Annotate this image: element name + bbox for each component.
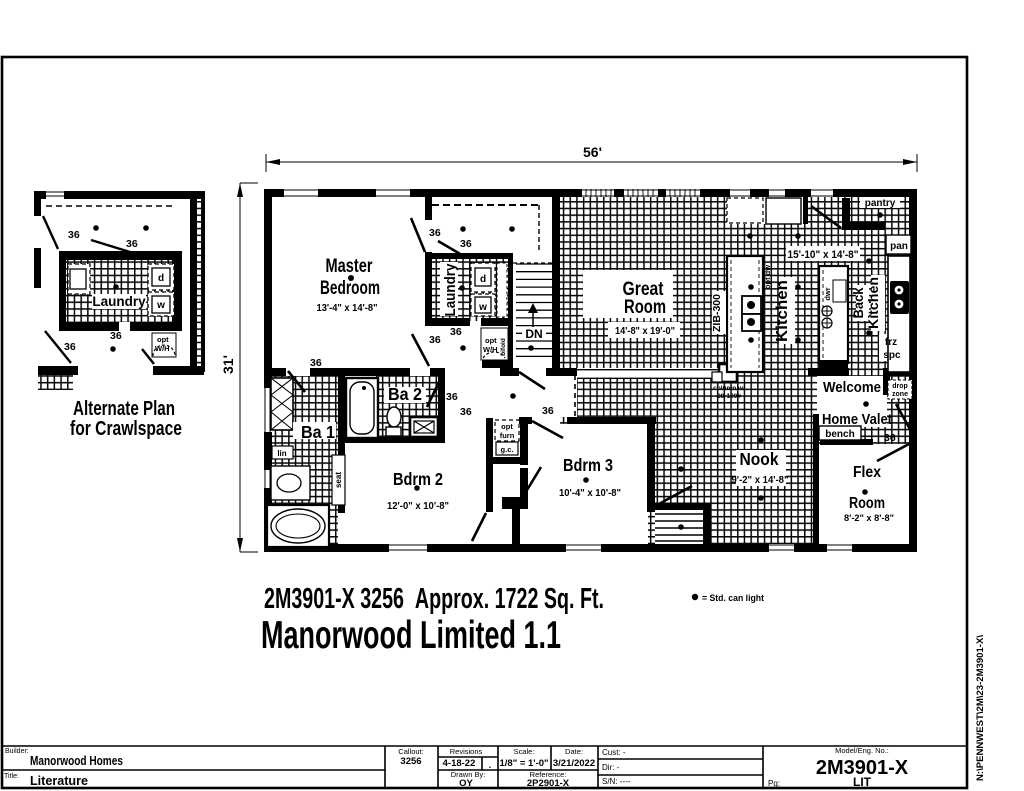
svg-text:36: 36 bbox=[446, 391, 458, 403]
svg-text:36: 36 bbox=[460, 406, 472, 418]
svg-text:.: . bbox=[489, 760, 492, 771]
svg-text:S/N: ----: S/N: ---- bbox=[602, 777, 631, 786]
svg-text:1/8" = 1'-0": 1/8" = 1'-0" bbox=[499, 758, 548, 769]
svg-text:Title:: Title: bbox=[4, 773, 19, 780]
svg-text:14'-8" x 19'-0": 14'-8" x 19'-0" bbox=[615, 325, 675, 337]
svg-text:Dir: -: Dir: - bbox=[602, 763, 620, 772]
svg-text:zone: zone bbox=[892, 391, 908, 398]
svg-text:36: 36 bbox=[429, 227, 441, 239]
svg-text:15'-10" x 14'-8": 15'-10" x 14'-8" bbox=[788, 249, 859, 261]
svg-text:= Std. can light: = Std. can light bbox=[702, 593, 765, 604]
svg-text:3256: 3256 bbox=[400, 756, 421, 767]
svg-text:36: 36 bbox=[429, 334, 441, 346]
svg-text:Alternate Plan: Alternate Plan bbox=[73, 398, 175, 420]
svg-text:W/H: W/H bbox=[483, 345, 498, 354]
svg-text:Bedroom: Bedroom bbox=[320, 278, 380, 299]
svg-text:frz: frz bbox=[885, 337, 897, 348]
svg-text:Manorwood Limited 1.1: Manorwood Limited 1.1 bbox=[261, 614, 561, 657]
svg-text:36: 36 bbox=[126, 238, 138, 250]
svg-text:8'-2" x 8'-8": 8'-2" x 8'-8" bbox=[844, 513, 894, 523]
svg-text:Date:: Date: bbox=[565, 747, 583, 756]
svg-text:3/21/2022: 3/21/2022 bbox=[553, 758, 595, 769]
svg-text:dwr: dwr bbox=[823, 287, 832, 300]
svg-text:36: 36 bbox=[884, 432, 896, 444]
svg-text:d: d bbox=[158, 273, 164, 284]
svg-text:furn: furn bbox=[500, 431, 515, 440]
svg-text:N:\PENNWEST\2M\23-2M3901-X\: N:\PENNWEST\2M\23-2M3901-X\ bbox=[975, 634, 985, 781]
svg-text:Model/Eng. No.:: Model/Eng. No.: bbox=[835, 746, 889, 755]
svg-text:Welcome: Welcome bbox=[823, 380, 881, 396]
svg-text:LIT: LIT bbox=[853, 775, 872, 789]
svg-text:56': 56' bbox=[583, 144, 602, 160]
svg-text:spc: spc bbox=[883, 350, 901, 361]
svg-text:bifold: bifold bbox=[500, 338, 507, 356]
svg-text:lin: lin bbox=[277, 449, 286, 458]
svg-text:12'-0" x 10'-8": 12'-0" x 10'-8" bbox=[387, 501, 449, 512]
svg-text:9'-2" x 14'-8": 9'-2" x 14'-8" bbox=[732, 475, 789, 486]
svg-text:d: d bbox=[480, 274, 486, 285]
svg-text:80-100#: 80-100# bbox=[717, 393, 741, 400]
svg-text:column w/: column w/ bbox=[713, 385, 745, 392]
svg-text:Pg:: Pg: bbox=[768, 779, 780, 788]
svg-text:DN: DN bbox=[525, 327, 542, 341]
svg-text:opt: opt bbox=[485, 336, 497, 345]
svg-text:opt: opt bbox=[501, 422, 513, 431]
svg-text:4-18-22: 4-18-22 bbox=[443, 758, 476, 769]
svg-text:Flex: Flex bbox=[853, 464, 881, 481]
svg-text:Kitchen: Kitchen bbox=[866, 277, 881, 329]
svg-text:36: 36 bbox=[68, 229, 80, 241]
svg-text:Scale:: Scale: bbox=[514, 747, 535, 756]
svg-text:Kitchen: Kitchen bbox=[774, 280, 791, 342]
svg-text:31': 31' bbox=[220, 355, 236, 374]
svg-text:Nook: Nook bbox=[740, 449, 779, 469]
svg-text:Revisions: Revisions bbox=[450, 747, 483, 756]
svg-text:w: w bbox=[478, 302, 487, 313]
svg-text:2P2901-X: 2P2901-X bbox=[527, 778, 570, 789]
svg-text:Back: Back bbox=[851, 287, 866, 318]
svg-text:for Crawlspace: for Crawlspace bbox=[70, 418, 182, 440]
svg-text:W/H: W/H bbox=[155, 344, 170, 353]
svg-text:drop: drop bbox=[892, 383, 908, 390]
svg-text:Ba 1: Ba 1 bbox=[301, 422, 335, 442]
svg-text:Master: Master bbox=[326, 256, 373, 277]
svg-text:seat: seat bbox=[334, 472, 343, 488]
svg-text:36: 36 bbox=[310, 357, 322, 369]
svg-text:Ba 2: Ba 2 bbox=[388, 384, 422, 404]
svg-text:36: 36 bbox=[110, 330, 122, 342]
svg-text:Room: Room bbox=[624, 297, 666, 318]
svg-text:Manorwood Homes: Manorwood Homes bbox=[30, 754, 123, 768]
svg-text:Literature: Literature bbox=[30, 774, 88, 788]
svg-text:36: 36 bbox=[64, 341, 76, 353]
svg-text:Laundry: Laundry bbox=[92, 294, 146, 309]
svg-text:36: 36 bbox=[460, 238, 472, 250]
svg-text:opt: opt bbox=[157, 335, 169, 344]
svg-text:2M3901-X 3256 Approx. 1722 Sq: 2M3901-X 3256 Approx. 1722 Sq. Ft. bbox=[264, 583, 604, 615]
svg-text:Callout:: Callout: bbox=[398, 747, 423, 756]
svg-text:Home Valet: Home Valet bbox=[822, 412, 892, 428]
svg-text:Builder:: Builder: bbox=[5, 748, 29, 755]
svg-text:ZIB-300: ZIB-300 bbox=[712, 294, 723, 332]
svg-text:w: w bbox=[156, 300, 165, 311]
svg-text:36: 36 bbox=[542, 405, 554, 417]
svg-text:13'-4" x 14'-8": 13'-4" x 14'-8" bbox=[317, 302, 378, 314]
svg-text:pantry: pantry bbox=[865, 198, 896, 209]
svg-text:Room: Room bbox=[849, 495, 885, 512]
svg-text:Laundry: Laundry bbox=[442, 263, 459, 317]
svg-text:g.c.: g.c. bbox=[501, 445, 514, 454]
svg-text:Bdrm 3: Bdrm 3 bbox=[563, 455, 613, 475]
svg-text:36: 36 bbox=[450, 326, 462, 338]
svg-text:10'-4" x 10'-8": 10'-4" x 10'-8" bbox=[559, 488, 621, 499]
svg-text:bench: bench bbox=[825, 429, 854, 440]
svg-text:pan: pan bbox=[890, 241, 908, 252]
svg-text:Bdrm 2: Bdrm 2 bbox=[393, 469, 443, 489]
svg-text:OY: OY bbox=[459, 778, 473, 789]
svg-text:Cust: -: Cust: - bbox=[602, 748, 626, 757]
svg-text:opt dw: opt dw bbox=[763, 265, 772, 289]
